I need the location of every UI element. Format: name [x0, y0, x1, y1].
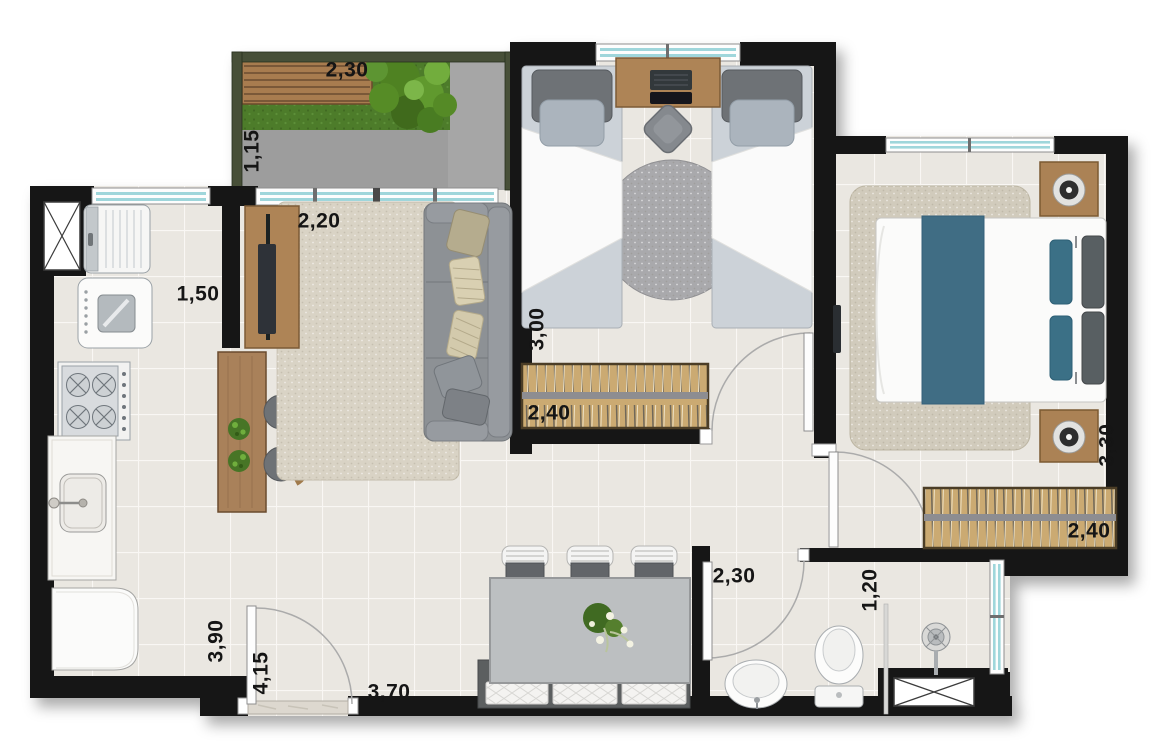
dim-master-depth: 3,30 [1097, 424, 1118, 467]
dim-bathroom-width: 1,20 [860, 569, 881, 612]
washing-machine [78, 278, 152, 348]
shower-divider [884, 604, 888, 714]
balcony [232, 52, 515, 190]
toilet [815, 626, 863, 707]
pillow [1082, 312, 1104, 384]
tv-rack [245, 206, 299, 348]
dim-balcony-depth: 1,15 [242, 130, 263, 173]
washbasin [725, 660, 787, 709]
desk [616, 58, 720, 107]
dim-kitchen-width: 1,50 [177, 284, 220, 305]
nightstand-top [1040, 162, 1098, 216]
living-room [245, 202, 512, 480]
laundry-appliance [52, 588, 138, 670]
window-master [886, 138, 1054, 152]
bar-counter [218, 352, 266, 512]
single-bed-right [712, 66, 812, 328]
service-shaft-kitchen [44, 202, 80, 270]
pillow [1050, 316, 1072, 380]
dining-area [478, 546, 690, 708]
dim-bedroom2-wardrobe: 2,40 [528, 403, 571, 424]
laptop [650, 70, 692, 104]
bed-runner [922, 216, 984, 404]
window-kitchen [92, 188, 210, 204]
pillow [1082, 236, 1104, 308]
double-bed [876, 216, 1106, 404]
dim-balcony-length: 2,30 [326, 60, 369, 81]
dim-master-wardrobe: 2,40 [1068, 521, 1111, 542]
dim-bedroom2-depth: 3,00 [527, 308, 548, 351]
dim-kitchen-depth: 3,90 [206, 620, 227, 663]
plant [228, 418, 250, 440]
service-shaft-bathroom [894, 678, 974, 706]
plant [228, 450, 250, 472]
lamp [1053, 174, 1085, 206]
floor-plan-image: 2,30 1,15 1,50 2,20 3,00 2,40 3,30 2,40 … [0, 0, 1157, 752]
fridge [84, 205, 150, 273]
floor-plan-svg [0, 0, 1157, 752]
tv [258, 244, 276, 334]
stove [58, 362, 130, 440]
dim-entry-hall-depth: 4,15 [251, 652, 272, 695]
dim-dining-width: 3,70 [368, 682, 411, 703]
dim-living-width: 2,20 [298, 211, 341, 232]
pillow [1050, 240, 1072, 304]
window-bathroom [990, 560, 1004, 674]
sofa [424, 203, 512, 441]
sink-counter [48, 436, 116, 580]
single-bed-left [522, 66, 622, 328]
wall-tv [833, 305, 841, 353]
nightstand-bottom [1040, 410, 1098, 462]
lamp [1053, 421, 1085, 453]
dim-bathroom-length: 2,30 [713, 566, 756, 587]
